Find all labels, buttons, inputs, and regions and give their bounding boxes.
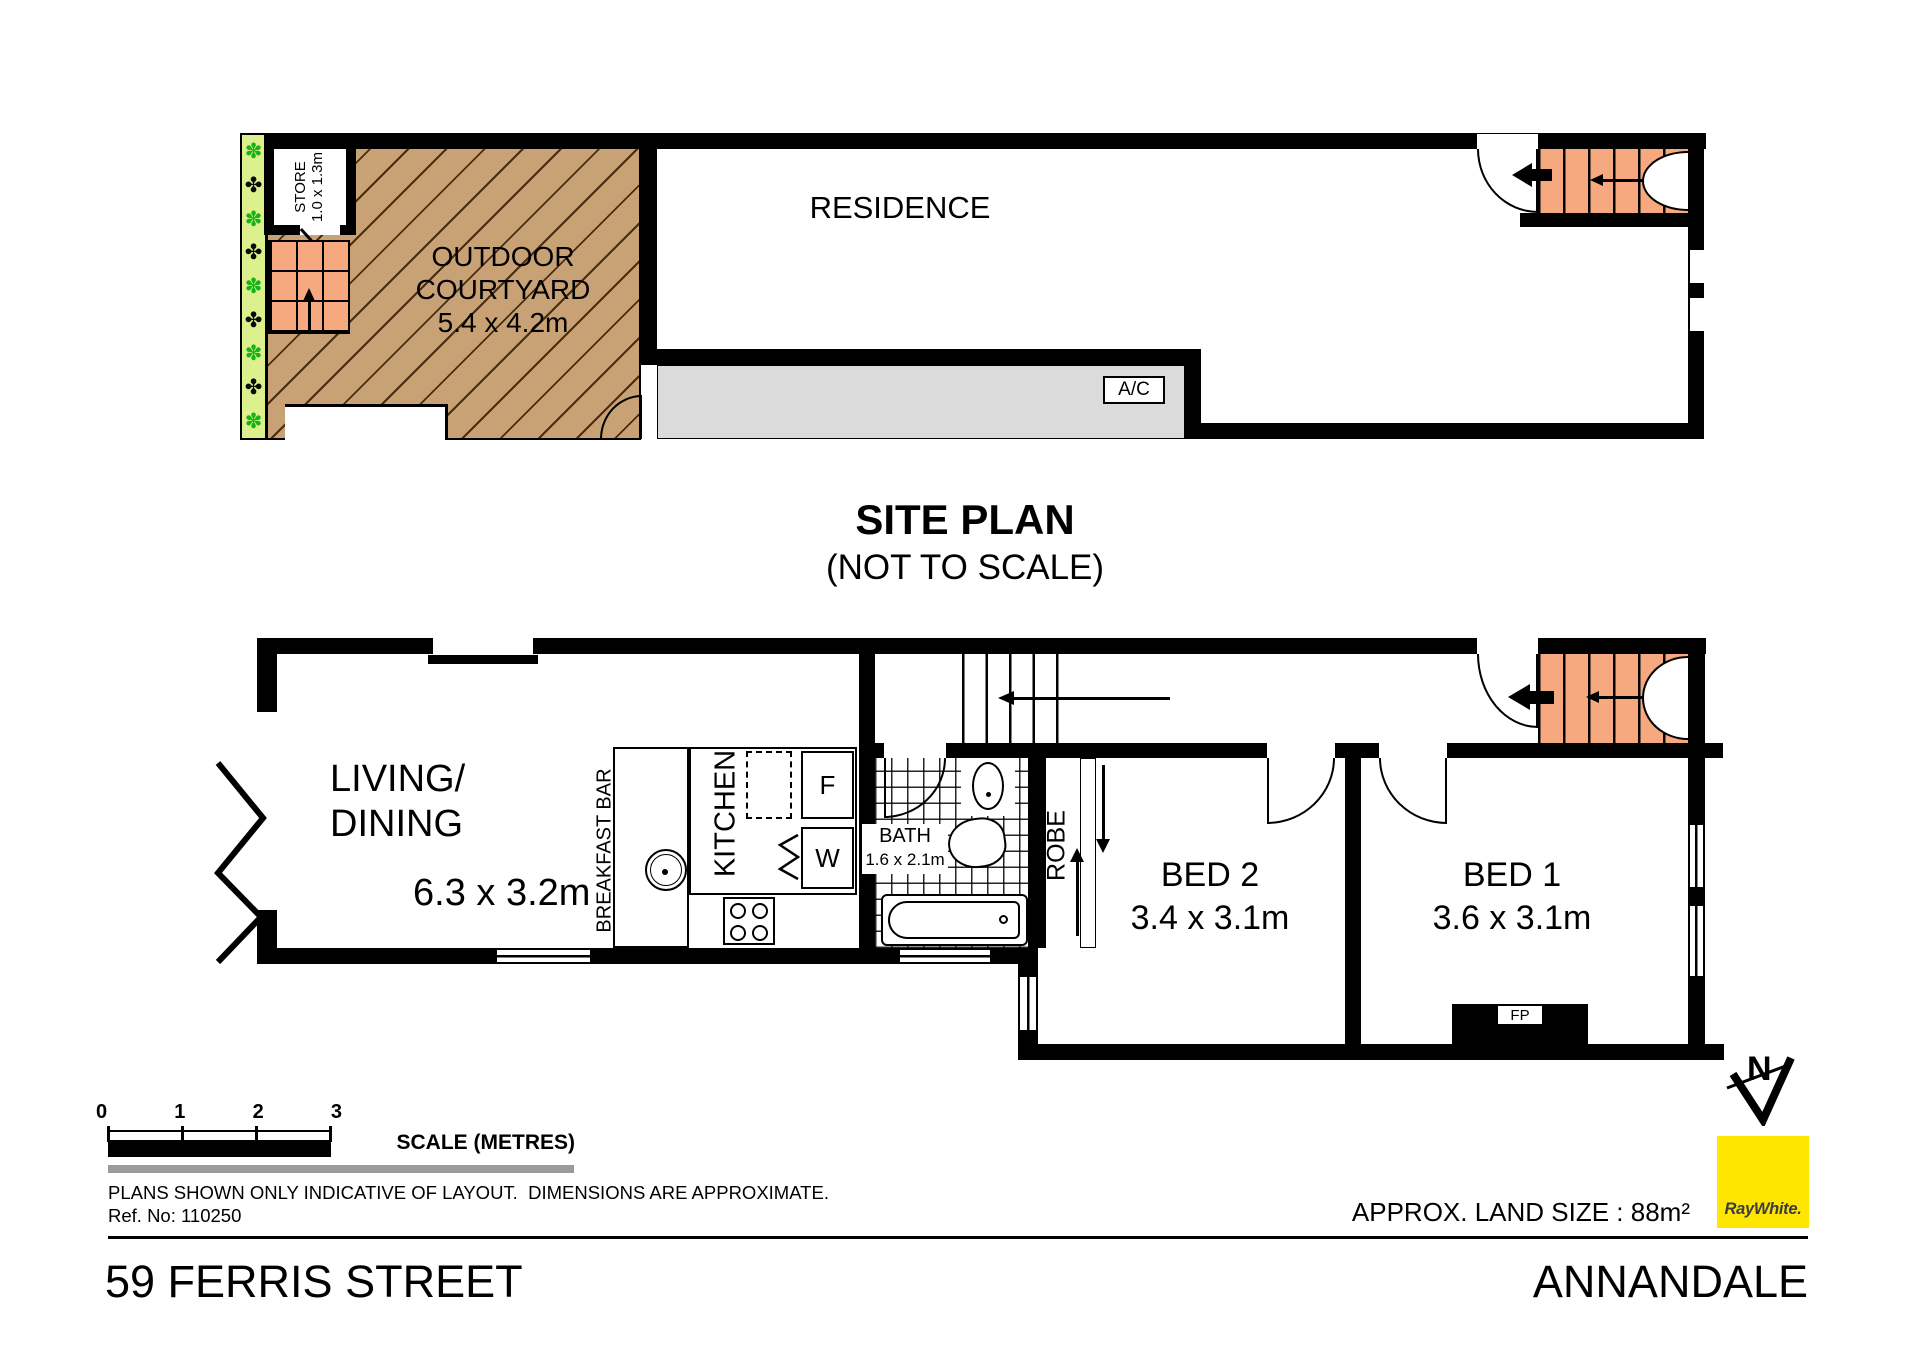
store-label: STORE 1.0 x 1.3m — [292, 142, 328, 232]
land-size: APPROX. LAND SIZE : 88m² — [1190, 1197, 1690, 1228]
wall-segment — [1520, 213, 1704, 227]
wall-segment — [859, 654, 875, 948]
sink-drain-dot — [662, 869, 668, 875]
list-item: ✽ — [245, 411, 263, 432]
stair-up-arrow-stem — [1076, 862, 1079, 936]
footer-divider — [108, 1236, 1808, 1239]
floorplan-page: ✽✤✽✤✽✤✽✤✽ STORE 1.0 x 1.3m A/C RESIDENCE — [0, 0, 1920, 1357]
stair-direction-arrow-head — [1512, 163, 1532, 187]
bathtub-drain — [999, 915, 1008, 924]
burner — [752, 925, 768, 941]
washer-zigzag-icon — [776, 833, 802, 881]
stair-arrow-stem — [308, 300, 311, 330]
bed2-dims: 3.4 x 3.1m — [1110, 899, 1310, 938]
wall-segment — [641, 349, 1201, 365]
stair-direction-arrow-body — [1530, 691, 1554, 704]
wall-segment — [1688, 149, 1704, 439]
wall-segment — [1345, 743, 1361, 1060]
bed2-door-opening — [1267, 743, 1335, 758]
wall-segment — [1185, 349, 1201, 439]
svg-text:N: N — [1747, 1050, 1772, 1088]
wall-segment — [1018, 1044, 1724, 1060]
breakfast-bar-label: BREAKFAST BAR — [594, 741, 617, 961]
garden-strip: ✽✤✽✤✽✤✽✤✽ — [240, 133, 267, 440]
stair-direction-arrow-head — [1508, 684, 1530, 710]
scale-gray-bar — [108, 1165, 574, 1173]
raywhite-logo-text: RayWhite. — [1724, 1200, 1801, 1228]
page-title: SITE PLAN — [765, 496, 1165, 544]
street-address: 59 FERRIS STREET — [105, 1256, 523, 1308]
living-dims: 6.3 x 3.2m — [413, 872, 590, 915]
list-item: 0 — [96, 1101, 107, 1125]
entry-door-opening — [1477, 134, 1538, 149]
wall-recess-bar — [428, 655, 538, 664]
burner — [730, 903, 746, 919]
wall-segment — [257, 654, 277, 712]
basin — [972, 762, 1004, 810]
scale-label: SCALE (METRES) — [380, 1131, 575, 1155]
list-item: ✽ — [245, 343, 263, 364]
courtyard-label: OUTDOOR COURTYARD 5.4 x 4.2m — [353, 240, 653, 339]
list-item: ✤ — [245, 377, 263, 398]
residence-label: RESIDENCE — [700, 190, 1100, 226]
bed2-door-arc — [1267, 758, 1335, 824]
bed1-window — [1688, 825, 1705, 887]
bath-window — [900, 948, 990, 964]
bed1-door-opening — [1379, 743, 1447, 758]
stair-down-arrow-head — [1096, 839, 1110, 853]
stair-up-arrow-head — [1070, 848, 1084, 862]
bath-label: BATH 1.6 x 2.1m — [862, 824, 948, 874]
fridge-label: F — [820, 770, 836, 801]
stair-arrow-head — [303, 288, 315, 301]
living-window — [497, 948, 590, 964]
breakfast-bar-counter — [613, 747, 689, 948]
fireplace-label: FP — [1510, 1007, 1529, 1024]
stair-down-arrow-stem — [1102, 765, 1105, 841]
bed2-side-window — [1018, 977, 1038, 1030]
bed1-door-arc — [1379, 758, 1447, 824]
ac-unit: A/C — [1103, 376, 1165, 404]
living-label: LIVING/ DINING — [330, 757, 465, 847]
list-item: ✤ — [245, 242, 263, 263]
open-wall-zigzag — [205, 748, 275, 970]
wall-notch — [1690, 298, 1704, 331]
raywhite-logo: RayWhite. — [1717, 1136, 1809, 1228]
bed1-window — [1688, 906, 1705, 976]
hall-door-opening — [1477, 638, 1538, 654]
list-item: ✽ — [245, 141, 263, 162]
wall-segment — [1201, 423, 1704, 439]
page-subtitle: (NOT TO SCALE) — [765, 548, 1165, 588]
ac-label: A/C — [1118, 379, 1150, 401]
bed2-label: BED 2 — [1110, 856, 1310, 895]
list-item: 1 — [174, 1101, 185, 1125]
list-item: 3 — [331, 1101, 342, 1125]
fireplace: FP — [1496, 1004, 1544, 1026]
scale-tick-rail — [108, 1130, 331, 1132]
list-item: ✤ — [245, 175, 263, 196]
bath-door-opening — [884, 743, 946, 758]
washer-label: W — [815, 843, 840, 874]
reference-number: Ref. No: 110250 — [108, 1205, 241, 1227]
washer: W — [801, 827, 854, 889]
wall-notch — [1690, 250, 1704, 283]
list-item: 2 — [253, 1101, 264, 1125]
robe-label: ROBE — [1043, 786, 1072, 906]
wall-recess — [433, 638, 533, 654]
bed1-dims: 3.6 x 3.1m — [1412, 899, 1612, 938]
hall-arrow-line — [1012, 697, 1170, 700]
list-item: ✽ — [245, 209, 263, 230]
burner — [730, 925, 746, 941]
scale-black-bar — [108, 1140, 331, 1157]
bed1-label: BED 1 — [1412, 856, 1612, 895]
disclaimer-text: PLANS SHOWN ONLY INDICATIVE OF LAYOUT. D… — [108, 1182, 829, 1204]
basin-tap-dot — [986, 792, 991, 797]
kitchen-dashed-unit — [746, 751, 792, 819]
kitchen-label: KITCHEN — [710, 734, 743, 894]
suburb: ANNANDALE — [1405, 1256, 1808, 1308]
stair-direction-arrow-body — [1532, 169, 1552, 181]
list-item: ✤ — [245, 310, 263, 331]
north-arrow-icon: N — [1725, 1048, 1807, 1126]
courtyard-gate-notch — [285, 404, 448, 440]
list-item: ✽ — [245, 276, 263, 297]
fridge: F — [801, 751, 854, 819]
scale-tick-numbers: 0123 — [96, 1101, 342, 1125]
burner — [752, 903, 768, 919]
